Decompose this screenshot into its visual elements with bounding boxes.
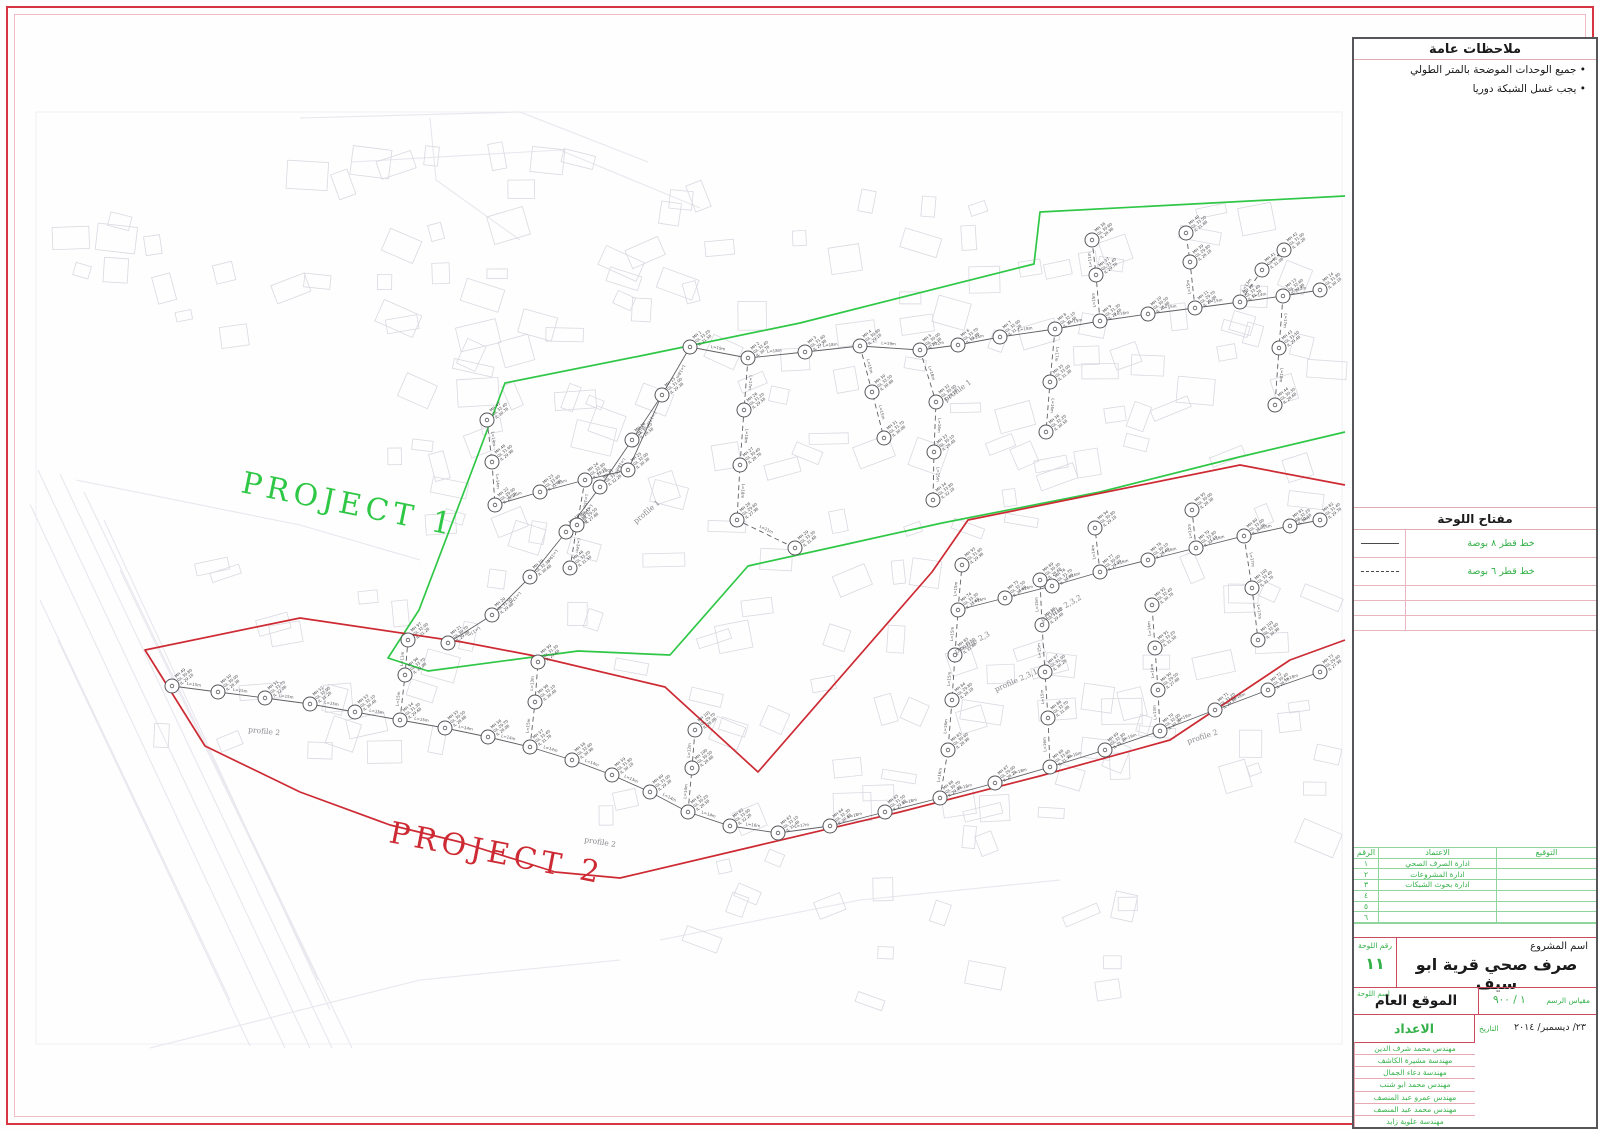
svg-text:L=15m: L=15m [1036, 643, 1042, 658]
svg-text:L=12m: L=12m [1186, 524, 1193, 539]
team-member: مهندس عمرو عبد المنصف [1355, 1092, 1475, 1104]
svg-text:L=14m: L=14m [682, 784, 688, 799]
scale-cell: مقياس الرسم ١ / ٩٠٠ [1479, 988, 1596, 1014]
manhole: MH 10GL 30.50IL 28.88 [1141, 292, 1172, 321]
svg-text:L=16m: L=16m [936, 767, 943, 782]
manhole: MH 93GL 31.60IL 29.98 [955, 543, 986, 572]
approval-row-number: ٥ [1354, 902, 1379, 913]
manhole: MH 5GL 30.00IL 28.38 [913, 328, 944, 357]
manhole: MH 35GL 33.00IL 31.38 [1043, 360, 1074, 389]
legend-row-label [1406, 586, 1596, 600]
svg-text:L=15m: L=15m [935, 467, 940, 482]
title-block-panel: ملاحظات عامة جميع الوحدات الموضحة بالمتر… [1352, 37, 1598, 1129]
sheet-number-cell: رقم اللوحة ١١ [1354, 938, 1397, 987]
legend-row [1354, 616, 1596, 631]
approval-row-signature [1497, 859, 1596, 870]
svg-text:L=17m: L=17m [1256, 604, 1263, 619]
approvals-header-signature: التوقيع [1497, 848, 1596, 859]
manhole: MH 8GL 32.10IL 30.48 [1048, 307, 1079, 336]
legend-title: مفتاح اللوحة [1354, 507, 1596, 530]
svg-text:L=15m: L=15m [952, 581, 958, 596]
manhole: MH 9GL 31.30IL 29.68 [1093, 299, 1124, 328]
legend-row-label: خط قطر ٦ بوصة [1406, 558, 1596, 585]
manhole: MH 42GL 31.90IL 30.28 [1277, 228, 1308, 257]
scale-value: ١ / ٩٠٠ [1493, 994, 1526, 1006]
svg-text:L=14m: L=14m [458, 724, 473, 732]
svg-text:L=15m: L=15m [279, 693, 294, 700]
profile-label: profile 2 [1186, 727, 1219, 745]
approvals-header-entity: الاعتماد [1379, 848, 1497, 859]
manhole: MH 99GL 31.30IL 29.68 [531, 640, 562, 669]
manhole: MH 94GL 30.80IL 29.18 [1088, 506, 1119, 535]
approval-row-entity: ادارة بحوث الشبكات [1379, 880, 1497, 891]
approval-row-number: ٣ [1354, 880, 1379, 891]
manhole: MH 34GL 33.80IL 32.18 [926, 478, 957, 507]
project-name-row: رقم اللوحة ١١ اسم المشروع صرف صحي قرية ا… [1354, 937, 1596, 987]
project-name-label: اسم المشروع [1530, 941, 1588, 952]
team-member: مهندسة علوية زايد [1355, 1116, 1475, 1127]
solid-line-sample [1354, 530, 1406, 557]
team-member: مهندس محمد شرف الدين [1355, 1043, 1475, 1055]
svg-text:L=15m: L=15m [324, 700, 339, 707]
empty-sample [1354, 586, 1406, 600]
manhole: MH 72GL 30.40IL 28.78 [1261, 668, 1292, 697]
manhole: MH 3GL 31.60IL 29.98 [798, 330, 829, 359]
svg-text:L=14m: L=14m [495, 474, 501, 489]
svg-text:L=17m: L=17m [1283, 313, 1289, 328]
svg-text:L=15m: L=15m [946, 671, 952, 686]
legend-row: خط قطر ٦ بوصة [1354, 558, 1596, 586]
manhole: MH 21GL 30.70IL 29.08 [441, 621, 472, 650]
manhole: MH 30GL 32.50IL 30.88 [865, 370, 896, 399]
svg-text:L=14m: L=14m [1149, 663, 1155, 678]
svg-text:L=18m: L=18m [1279, 368, 1285, 383]
sheet-name-row: اسم اللوحة الموقع العام مقياس الرسم ١ / … [1354, 987, 1596, 1014]
note-item: يجب غسل الشبكة دوريا [1362, 80, 1586, 99]
manhole: MH 12GL 33.40IL 31.78 [1233, 280, 1264, 309]
manhole: MH 82GL 31.40IL 29.78 [1313, 498, 1344, 527]
manhole: MH 91GL 33.20IL 31.58 [1148, 626, 1179, 655]
sheet-name-cell: اسم اللوحة الموقع العام [1354, 988, 1479, 1014]
svg-text:L=11m: L=11m [1086, 252, 1093, 267]
approval-row-number: ٤ [1354, 891, 1379, 902]
approval-row-signature [1497, 912, 1596, 923]
approvals-table: الرقمالاعتمادالتوقيع١ادارة الصرف الصحي٢ا… [1354, 847, 1596, 924]
manhole: MH 92GL 32.40IL 30.78 [1145, 583, 1176, 612]
sheet-number-label: رقم اللوحة [1354, 941, 1396, 950]
sheet-name-value: الموقع العام [1354, 993, 1478, 1009]
approval-row-signature [1497, 869, 1596, 880]
prepared-date-row: الاعداد التاريخ ٢٣/ ديسمبر/ ٢٠١٤ [1354, 1014, 1596, 1042]
prepared-by-header: الاعداد [1354, 1015, 1475, 1042]
svg-text:L=15m: L=15m [1034, 597, 1040, 612]
profile-label: profile 1 [632, 498, 662, 525]
svg-text:L=18m: L=18m [675, 364, 687, 379]
svg-text:L=16m: L=16m [1050, 398, 1056, 413]
manhole: MH 26GL 31.20IL 29.58 [737, 388, 768, 417]
approval-row-entity [1379, 902, 1497, 913]
team-member: مهندس محمد عبد المنصف [1355, 1104, 1475, 1116]
manhole: MH 7GL 32.90IL 31.28 [993, 315, 1024, 344]
legend-row [1354, 601, 1596, 616]
svg-text:L=18m: L=18m [740, 484, 746, 499]
team-list: مهندس محمد شرف الدينمهندسة مشيرة الكاشفم… [1354, 1042, 1475, 1127]
dashed-line-sample [1354, 558, 1406, 585]
manhole: MH 78GL 30.10IL 28.48 [1141, 538, 1172, 567]
legend-row-label [1406, 601, 1596, 615]
profile-label: profile 2,3,1 [993, 667, 1039, 694]
team-member: مهندسة دعاء الجمال [1355, 1067, 1475, 1079]
manhole: MH 13GL 32.60IL 30.98 [1276, 274, 1307, 303]
svg-text:L=16m: L=16m [745, 821, 760, 828]
svg-text:L=15m: L=15m [233, 687, 248, 694]
project-1-boundary [388, 196, 1345, 671]
manhole: MH 80GL 33.00IL 31.38 [1237, 514, 1268, 543]
approval-row-entity: ادارة المشروعات [1379, 869, 1497, 880]
approval-row-entity: ادارة الصرف الصحي [1379, 859, 1497, 870]
date-value: ٢٣/ ديسمبر/ ٢٠١٤ [1514, 1022, 1586, 1033]
manhole: MH 64GL 32.30IL 30.68 [823, 804, 854, 833]
empty-sample [1354, 601, 1406, 615]
approval-row-number: ٦ [1354, 912, 1379, 923]
svg-text:L=16m: L=16m [937, 418, 943, 433]
legend-row-label: خط قطر ٨ بوصة [1406, 530, 1596, 557]
svg-text:L=14m: L=14m [490, 431, 497, 446]
svg-text:L=14m: L=14m [1090, 545, 1097, 560]
manhole: MH 48GL 31.60IL 29.98 [485, 440, 516, 469]
manhole: MH 55GL 30.50IL 28.88 [438, 706, 469, 735]
manhole: MH 90GL 29.50IL 27.88 [1151, 668, 1182, 697]
project-2-label: PROJECT 2 [386, 815, 607, 891]
manhole: MH 52GL 32.90IL 31.28 [303, 682, 334, 711]
scale-label: مقياس الرسم [1546, 996, 1590, 1005]
drawing-sheet: PROJECT 1PROJECT 2L=19mL=18mL=18mL=19mL=… [0, 0, 1600, 1131]
date-cell: التاريخ ٢٣/ ديسمبر/ ٢٠١٤ [1475, 1015, 1596, 1042]
manhole: MH 68GL 33.60IL 31.98 [1043, 745, 1074, 774]
team-member: مهندس محمد ابو شنب [1355, 1079, 1475, 1091]
manhole: MH 95GL 30.00IL 28.38 [1185, 488, 1216, 517]
svg-text:L=15m: L=15m [525, 718, 532, 733]
approvals-header-no: الرقم [1354, 848, 1379, 859]
svg-text:L=15m: L=15m [949, 626, 955, 641]
manhole: MH 2GL 32.40IL 30.78 [741, 336, 772, 365]
svg-text:L=19m: L=19m [881, 340, 896, 346]
svg-text:L=17m: L=17m [1249, 552, 1256, 567]
manhole: MH 23GL 33.60IL 31.98 [533, 470, 564, 499]
svg-text:L=15m: L=15m [414, 716, 429, 723]
manhole: MH 33GL 30.10IL 28.48 [927, 430, 958, 459]
manhole: MH 40GL 33.50IL 31.88 [1179, 211, 1210, 240]
empty-sample [1354, 616, 1406, 630]
svg-text:L=12m: L=12m [686, 743, 692, 758]
profile-label: profile 2 [584, 835, 617, 849]
project-name-cell: اسم المشروع صرف صحي قرية ابو سيف [1397, 938, 1596, 987]
profile-label: profile 2 [248, 725, 281, 737]
manhole: MH 1GL 33.20IL 31.58 [683, 325, 714, 354]
svg-text:L=15m: L=15m [1091, 293, 1097, 308]
manhole: MH 73GL 29.60IL 27.98 [1313, 650, 1344, 679]
manhole: MH 20GL 31.50IL 29.88 [485, 593, 516, 622]
svg-text:L=15m: L=15m [878, 405, 887, 420]
legend-row-label [1406, 616, 1596, 630]
manhole: MH 43GL 31.10IL 29.48 [1272, 326, 1303, 355]
approval-row-signature [1497, 902, 1596, 913]
manhole: MH 14GL 31.80IL 30.18 [1313, 268, 1344, 297]
manhole: MH 6GL 33.70IL 32.08 [951, 323, 982, 352]
line-swatch [1361, 571, 1399, 572]
notes-title: ملاحظات عامة [1354, 39, 1596, 60]
svg-text:L=13m: L=13m [529, 676, 535, 691]
legend-row [1354, 586, 1596, 601]
manhole: MH 27GL 30.40IL 28.78 [733, 443, 764, 472]
sheet-number-value: ١١ [1354, 954, 1396, 973]
legend-rows: خط قطر ٨ بوصةخط قطر ٦ بوصة [1354, 530, 1596, 631]
svg-text:L=21m: L=21m [759, 524, 774, 535]
manhole: MH 75GL 32.50IL 30.88 [998, 576, 1029, 605]
date-label: التاريخ [1479, 1024, 1498, 1033]
approval-row-number: ١ [1354, 859, 1379, 870]
legend-row: خط قطر ٨ بوصة [1354, 530, 1596, 558]
site-map-svg: PROJECT 1PROJECT 2L=19mL=18mL=18mL=19mL=… [30, 98, 1348, 1050]
svg-text:L=17m: L=17m [1054, 347, 1060, 362]
manhole: MH 36GL 32.20IL 30.58 [1039, 410, 1070, 439]
manhole: MH 97GL 32.90IL 31.28 [401, 618, 432, 647]
svg-text:L=16m: L=16m [942, 719, 948, 734]
approval-row-signature [1497, 891, 1596, 902]
approval-row-entity [1379, 912, 1497, 923]
svg-text:L=13m: L=13m [624, 773, 639, 784]
approval-row-signature [1497, 880, 1596, 891]
svg-text:L=14m: L=14m [662, 792, 677, 803]
svg-text:L=15m: L=15m [1039, 689, 1045, 704]
manhole: MH 22GL 29.90IL 28.28 [488, 483, 519, 512]
notes-list: جميع الوحدات الموضحة بالمتر الطولييجب غس… [1362, 61, 1586, 501]
manhole: MH 71GL 31.20IL 29.58 [1208, 688, 1239, 717]
approval-row-number: ٢ [1354, 869, 1379, 880]
svg-text:L=14m: L=14m [584, 758, 599, 768]
svg-text:L=14m: L=14m [1146, 621, 1152, 636]
approval-row-entity [1379, 891, 1497, 902]
svg-text:L=16m: L=16m [1042, 737, 1048, 752]
svg-text:L=13m: L=13m [1152, 705, 1158, 720]
svg-text:L=15m: L=15m [186, 681, 201, 688]
svg-text:L=19m: L=19m [711, 344, 726, 352]
manhole: MH 47GL 32.40IL 30.78 [480, 398, 511, 427]
note-item: جميع الوحدات الموضحة بالمتر الطولي [1362, 61, 1586, 80]
team-member: مهندسة مشيرة الكاشف [1355, 1055, 1475, 1067]
project-1-label: PROJECT 1 [238, 466, 458, 544]
svg-text:L=18m: L=18m [744, 429, 750, 444]
svg-text:L=15m: L=15m [1185, 280, 1192, 295]
profile-label: profile 2,3,2 [1039, 593, 1084, 624]
svg-text:L=15m: L=15m [395, 691, 402, 706]
manhole: MH 65GL 31.50IL 29.88 [878, 790, 909, 819]
manhole: MH 4GL 30.80IL 29.18 [853, 324, 884, 353]
line-swatch [1361, 543, 1399, 544]
